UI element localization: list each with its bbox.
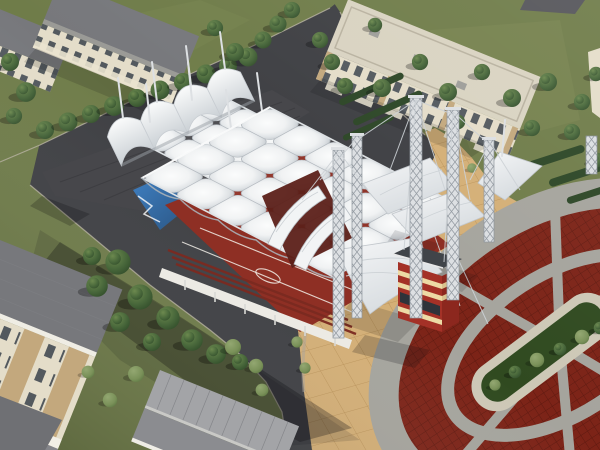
- lattice-mast: [331, 147, 346, 338]
- lattice-mast: [408, 95, 424, 318]
- render-image: [0, 0, 600, 450]
- lattice-mast: [350, 133, 364, 318]
- lattice-mast: [586, 136, 597, 174]
- scene-canvas: [0, 0, 600, 450]
